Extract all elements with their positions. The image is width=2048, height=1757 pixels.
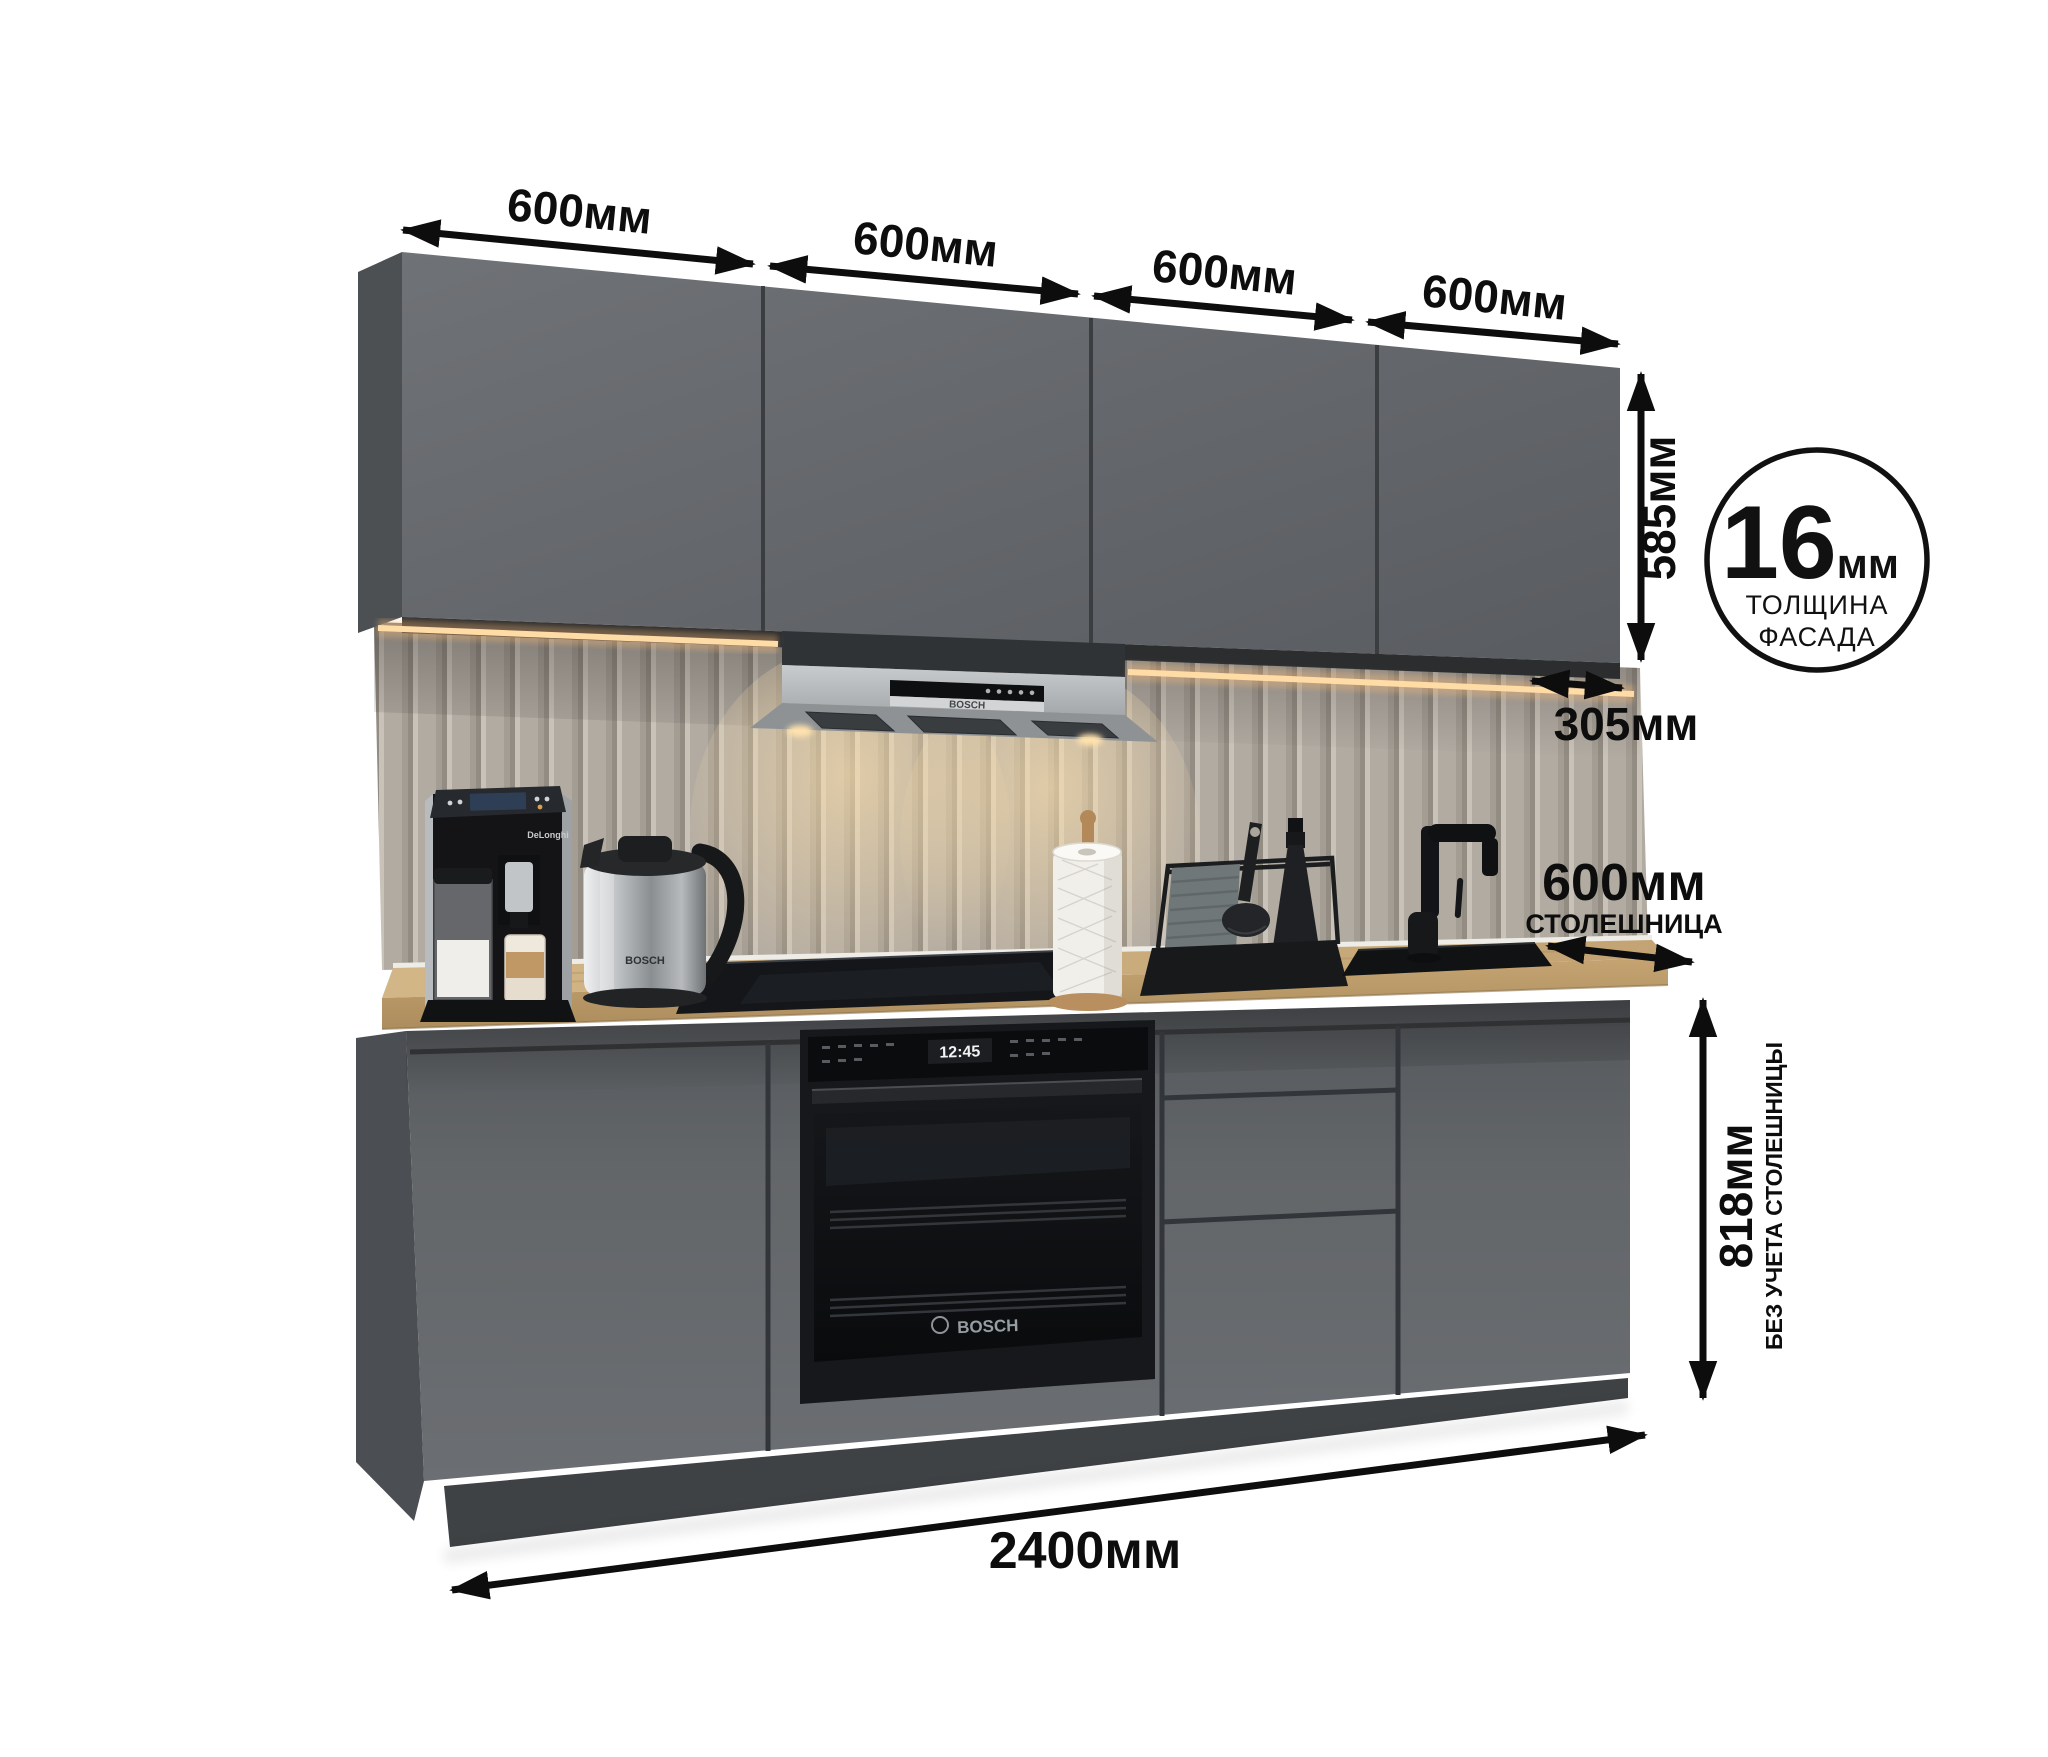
facade-thickness-badge: 16мм ТОЛЩИНА ФАСАДА bbox=[1707, 450, 1927, 670]
badge-caption-1: ТОЛЩИНА bbox=[1746, 590, 1889, 620]
towel-roll-core bbox=[1078, 849, 1096, 856]
coffee-milk bbox=[437, 940, 489, 997]
dim-worktop-value: 600мм bbox=[1542, 854, 1706, 912]
oven-brand-label: BOSCH bbox=[957, 1316, 1019, 1337]
oven: 12:45 BOSCH bbox=[800, 1020, 1155, 1404]
kettle-highlight bbox=[600, 870, 614, 990]
coffee-brand-label: DeLonghi bbox=[527, 830, 569, 840]
towel-base bbox=[1048, 993, 1128, 1011]
kettle-brand-label: BOSCH bbox=[625, 955, 665, 967]
dim-top-label-4: 600мм bbox=[1420, 264, 1569, 330]
coffee-brew-plate bbox=[505, 862, 533, 912]
badge-unit: мм bbox=[1837, 540, 1899, 587]
dim-top-label-2: 600мм bbox=[851, 211, 1000, 277]
kitchen-dimension-diagram: BOSCH 12:45 BOSCH bbox=[0, 0, 2048, 1757]
dim-top-label-3: 600мм bbox=[1150, 239, 1299, 305]
coffee-right-panel bbox=[562, 794, 572, 1010]
dim-base-height-value: 818мм bbox=[1710, 1124, 1762, 1269]
dim-upper-depth-label: 305мм bbox=[1554, 698, 1699, 750]
coffee-screen bbox=[470, 792, 526, 810]
badge-value: 16 bbox=[1721, 485, 1837, 601]
upper-side-panel bbox=[358, 252, 402, 633]
faucet-base bbox=[1407, 953, 1441, 963]
coffee-left-panel bbox=[425, 794, 433, 1010]
dim-top-arrow-2 bbox=[770, 266, 1078, 294]
faucet-nozzle bbox=[1482, 838, 1498, 876]
range-hood: BOSCH bbox=[750, 665, 1158, 746]
oven-display-time: 12:45 bbox=[939, 1043, 980, 1061]
coffee-carafe-lid bbox=[434, 868, 492, 884]
screenshot-root: BOSCH 12:45 BOSCH bbox=[0, 0, 2048, 1757]
faucet-body bbox=[1408, 912, 1438, 958]
dim-base-height-caption: БЕЗ УЧЕТА СТОЛЕШНИЦЫ bbox=[1761, 1042, 1787, 1350]
dim-top-arrow-3 bbox=[1094, 296, 1352, 320]
dim-top-arrow-4 bbox=[1368, 322, 1618, 344]
coffee-spout bbox=[510, 912, 528, 928]
kettle-lid bbox=[618, 836, 672, 862]
dim-top-label-1: 600мм bbox=[505, 178, 654, 244]
hood-lamp-right bbox=[1077, 734, 1103, 746]
towel-roll-shade bbox=[1104, 852, 1122, 998]
coffee-machine: DeLonghi bbox=[420, 786, 576, 1022]
hood-lamp-left bbox=[787, 725, 813, 737]
dim-total-width-label: 2400мм bbox=[989, 1522, 1182, 1580]
kettle-base bbox=[583, 988, 707, 1008]
dim-upper-height-label: 585мм bbox=[1633, 436, 1685, 581]
latte-glass bbox=[505, 935, 545, 1002]
badge-caption-2: ФАСАДА bbox=[1758, 622, 1875, 652]
coffee-drip-tray bbox=[420, 1000, 576, 1022]
dim-worktop-caption: СТОЛЕШНИЦА bbox=[1525, 909, 1722, 939]
